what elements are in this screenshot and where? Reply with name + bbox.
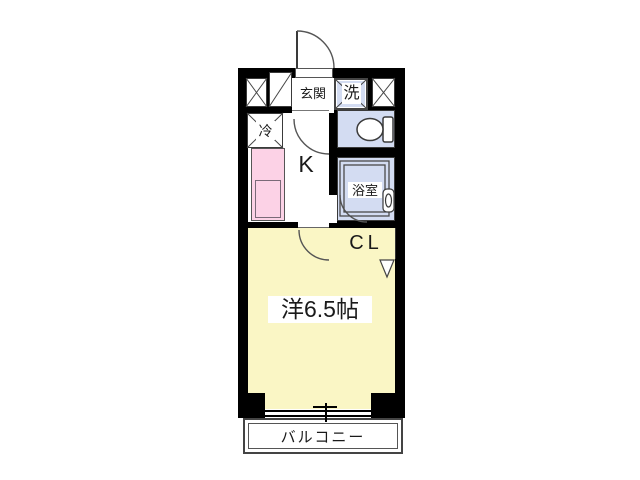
bathroom-door-opening [328,195,337,223]
toilet-room [337,110,395,148]
meter-box-diagonal [269,72,292,107]
balcony-window-line-outer [265,410,371,412]
entrance-door-arc [297,31,334,68]
floor-plan-page: { "plan": { "type": "apartment-floor-pla… [0,0,640,480]
entrance-door-leaf [296,31,298,69]
wall-nub-right [371,393,405,418]
kitchen-label: K [292,151,320,177]
kitchen-sink [255,180,281,218]
bathroom-label: 浴室 [348,182,382,198]
wall-nub-left [238,393,265,418]
pipe-shaft-box-left [246,78,267,107]
entrance-opening [295,68,333,78]
balcony-label: バルコニー [243,428,403,446]
balcony-window-line-inner [265,415,371,417]
pipe-shaft-box-right [372,78,395,107]
genkan-label: 玄関 [292,85,334,101]
room-door-threshold-line [298,227,329,228]
main-room-label: 洋6.5帖 [268,296,372,323]
fridge-label: 冷 [256,121,275,140]
closet-label: CL [336,230,396,256]
floor-plan: 玄関 洗 冷 K 浴室 CL 洋6.5帖 バルコニー [0,0,640,480]
genkan-step-line [292,110,329,111]
window-center-tick-horizontal [313,406,337,408]
washer-label: 洗 [342,83,361,104]
